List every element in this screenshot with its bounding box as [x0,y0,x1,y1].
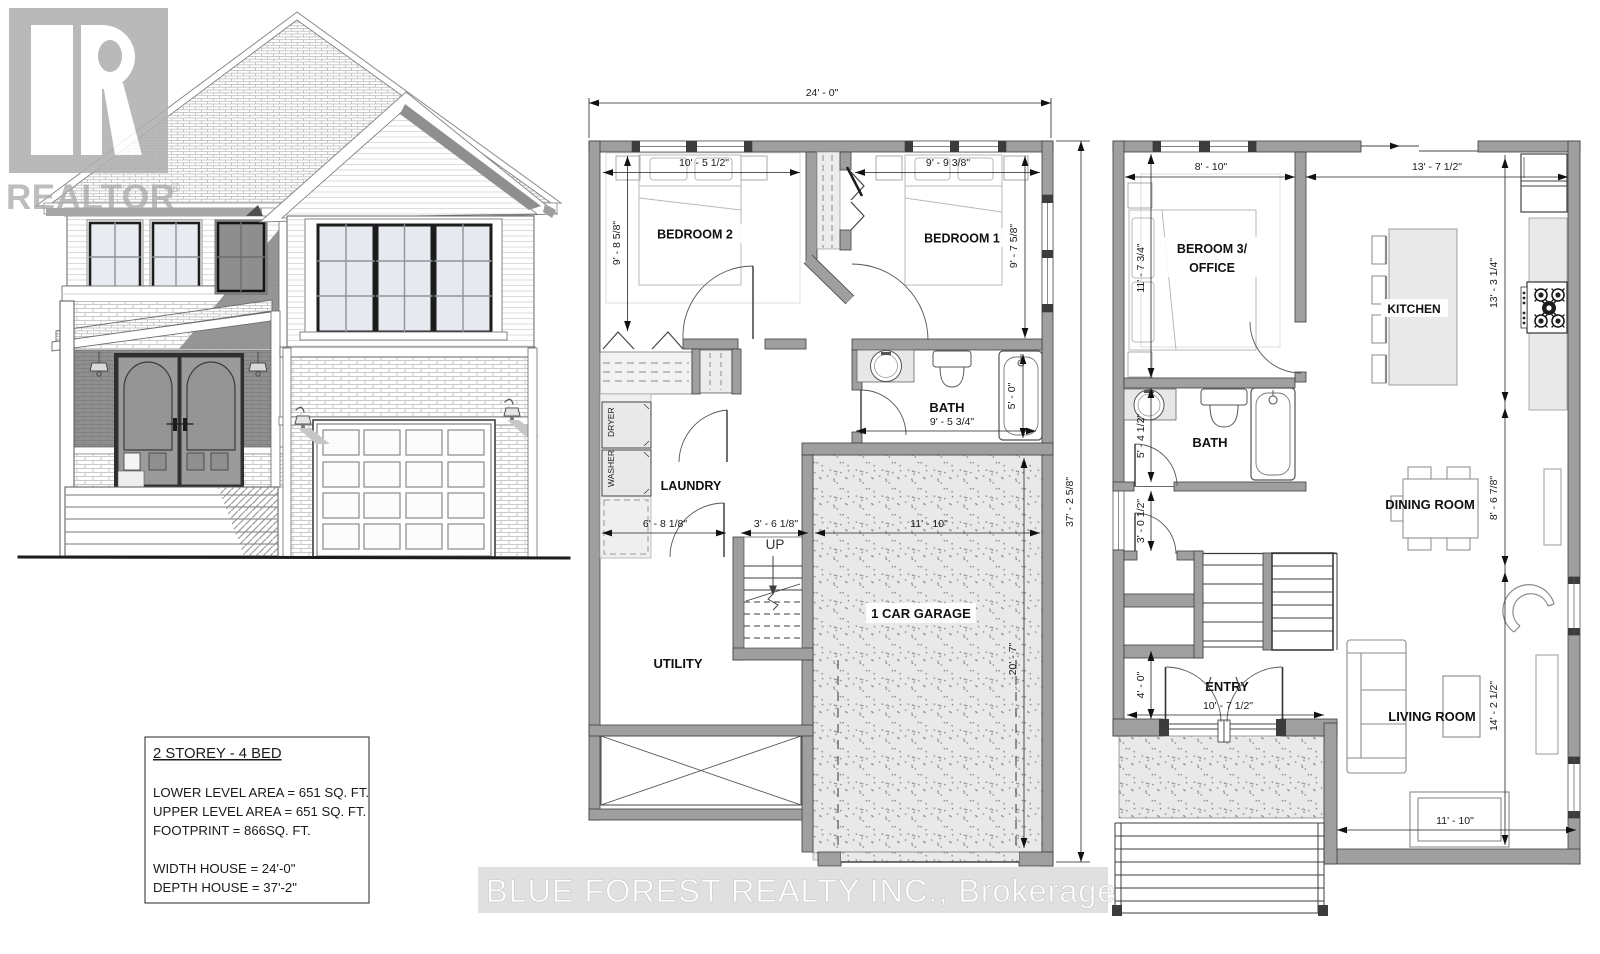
svg-text:KITCHEN: KITCHEN [1387,302,1440,316]
svg-text:LOWER LEVEL AREA = 651 SQ. FT.: LOWER LEVEL AREA = 651 SQ. FT. [153,785,369,800]
svg-text:6' - 8 1/8": 6' - 8 1/8" [643,518,688,530]
svg-text:13' - 7 1/2": 13' - 7 1/2" [1412,161,1462,173]
svg-text:13' - 3 1/4": 13' - 3 1/4" [1488,258,1500,308]
svg-text:8' - 6 7/8": 8' - 6 7/8" [1488,476,1500,521]
svg-text:WASHER: WASHER [606,450,616,487]
svg-text:UTILITY: UTILITY [653,656,702,671]
svg-text:10' - 5 1/2": 10' - 5 1/2" [679,157,729,169]
svg-text:OFFICE: OFFICE [1189,261,1235,275]
svg-text:LAUNDRY: LAUNDRY [661,479,722,493]
svg-text:5' - 0": 5' - 0" [1006,382,1018,409]
svg-text:5' - 4 1/2": 5' - 4 1/2" [1135,414,1147,459]
svg-text:37' - 2 5/8": 37' - 2 5/8" [1064,477,1076,527]
svg-text:BEDROOM 1: BEDROOM 1 [924,232,1000,246]
svg-text:9' - 9 3/8": 9' - 9 3/8" [926,157,971,169]
svg-text:9' - 8 5/8": 9' - 8 5/8" [611,221,623,266]
svg-text:DEPTH HOUSE = 37'-2": DEPTH HOUSE = 37'-2" [153,880,297,895]
svg-text:BATH: BATH [1192,435,1227,450]
svg-text:10' - 7 1/2": 10' - 7 1/2" [1203,700,1253,712]
svg-text:9' - 7 5/8": 9' - 7 5/8" [1008,224,1020,269]
svg-text:REALTOR: REALTOR [6,178,175,217]
svg-text:11' - 7 3/4": 11' - 7 3/4" [1135,243,1147,293]
svg-text:UPPER LEVEL AREA = 651 SQ. FT.: UPPER LEVEL AREA = 651 SQ. FT. [153,804,366,819]
svg-text:11' - 10": 11' - 10" [910,518,948,530]
svg-text:FOOTPRINT = 866SQ. FT.: FOOTPRINT = 866SQ. FT. [153,823,311,838]
svg-text:14' - 2 1/2": 14' - 2 1/2" [1488,681,1500,731]
svg-text:3' - 6 1/8": 3' - 6 1/8" [754,518,799,530]
svg-text:UP: UP [766,537,785,552]
svg-text:2 STOREY - 4 BED: 2 STOREY - 4 BED [153,746,282,762]
svg-text:BEDROOM 2: BEDROOM 2 [657,228,733,242]
svg-text:1 CAR GARAGE: 1 CAR GARAGE [871,606,971,621]
svg-text:4' - 0": 4' - 0" [1135,671,1147,698]
svg-text:20' - 7": 20' - 7" [1007,642,1019,675]
svg-text:BATH: BATH [929,400,964,415]
svg-text:BLUE FOREST REALTY INC., Broke: BLUE FOREST REALTY INC., Brokerage [486,873,1116,909]
svg-text:LIVING ROOM: LIVING ROOM [1388,709,1475,724]
svg-text:DINING ROOM: DINING ROOM [1385,497,1475,512]
svg-text:WIDTH HOUSE = 24'-0": WIDTH HOUSE = 24'-0" [153,861,296,876]
svg-text:8' - 10": 8' - 10" [1195,161,1228,173]
svg-text:BEROOM 3/: BEROOM 3/ [1177,242,1248,256]
svg-text:11' - 10": 11' - 10" [1436,815,1474,827]
svg-text:®: ® [170,179,181,195]
svg-text:9' - 5 3/4": 9' - 5 3/4" [930,416,975,428]
svg-text:DRYER: DRYER [606,407,616,437]
svg-text:3' - 0 1/2": 3' - 0 1/2" [1135,499,1147,544]
svg-text:24' - 0": 24' - 0" [806,87,839,99]
